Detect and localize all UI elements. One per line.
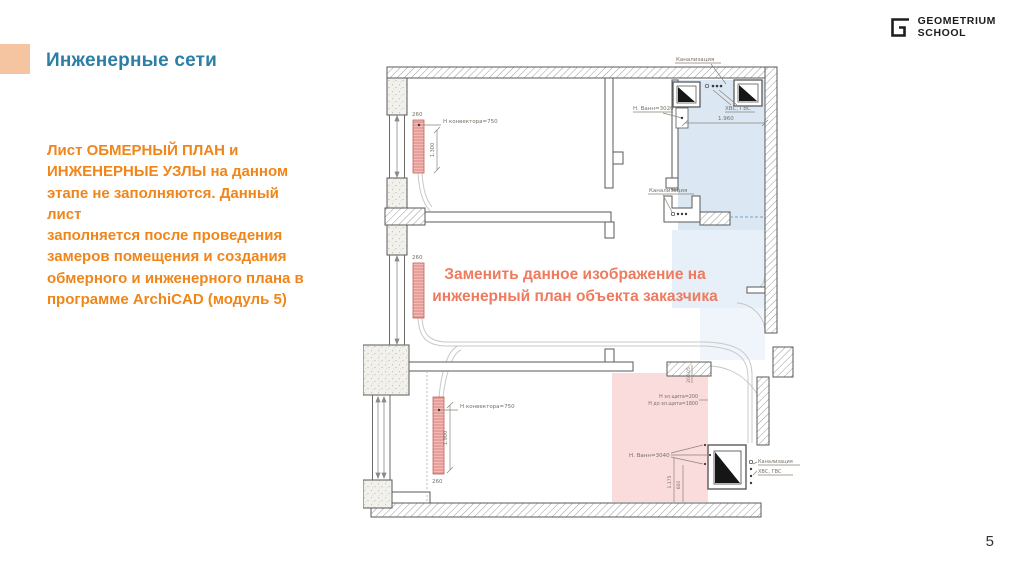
logo-line2: SCHOOL [918, 27, 996, 39]
geometrium-logo: GEOMETRIUM SCHOOL [888, 15, 996, 39]
replace-image-note: Заменить данное изображение на инженерны… [425, 264, 725, 309]
plan-label-konvektor-top: Н конвектора=750 [443, 119, 498, 125]
plan-label-kanalizaciya-bottom: Канализация [758, 459, 793, 465]
plan-label-kanalizaciya-top: Канализация [676, 57, 714, 63]
plan-label-hvs-gvs-bottom: ХВС, ГВС [758, 469, 782, 475]
plan-label-kanalizaciya-mid: Канализация [649, 188, 687, 194]
plan-label-el-shield-height: Н эл.щита=200 [659, 394, 698, 400]
radiator-top [413, 120, 424, 173]
replace-image-note-line1: Заменить данное изображение на [425, 264, 725, 286]
plan-dim-1960: 1.960 [718, 116, 734, 122]
plan-dim-260-mid: 260 [412, 255, 423, 261]
plan-dim-1175: 1.175 [667, 475, 673, 488]
plan-label-el-shield-to: Н до эл.щита=1800 [648, 401, 698, 407]
g-bracket-icon [888, 15, 912, 39]
zone-kitchen-pink [612, 373, 708, 502]
radiator-middle [413, 263, 424, 318]
page-number: 5 [986, 533, 994, 550]
plan-label-vann-3040: Н. Ванн=3040 [629, 453, 670, 459]
accent-square [0, 44, 30, 74]
plan-label-konvektor-bottom: Н конвектора=750 [460, 404, 515, 410]
plan-dim-260-bottom: 260 [432, 479, 443, 485]
logo-line1: GEOMETRIUM [918, 15, 996, 27]
plan-label-vann-3020: Н. Ванн=3020 [633, 106, 674, 112]
zone-blue-strip [700, 308, 765, 360]
replace-image-note-line2: инженерный план объекта заказчика [425, 286, 725, 308]
plan-label-hvs-gvs-top: ХВС, ГВС [725, 106, 751, 112]
plan-dim-1300: 1.300 [430, 143, 436, 157]
plan-dim-260-top: 260 [412, 112, 423, 118]
plan-dim-1900: 1.900 [443, 431, 449, 445]
plan-dim-600: 600 [676, 481, 682, 490]
plan-dim-206: 206,05 [686, 367, 692, 383]
slide-body-text: Лист ОБМЕРНЫЙ ПЛАН и ИНЖЕНЕРНЫЕ УЗЛЫ на … [47, 140, 317, 310]
page-title: Инженерные сети [46, 50, 217, 72]
